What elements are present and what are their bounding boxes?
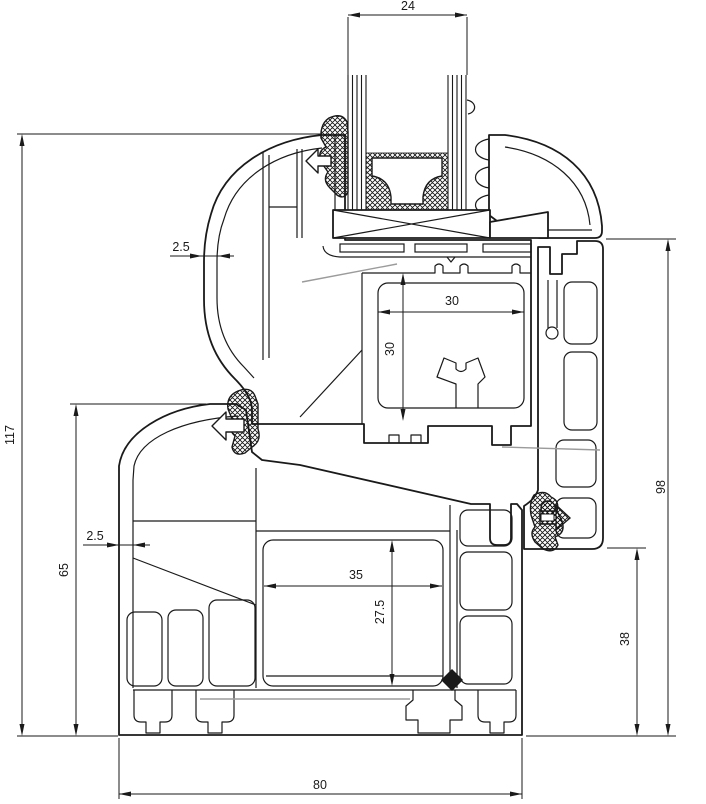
dimension-label-sash-chamber-width: 30: [445, 294, 459, 308]
profile-drawing: 242.5117652.530303527.5983880: [0, 0, 706, 804]
dimension-arrow-icon: [348, 13, 360, 18]
dimension-label-frame-chamber-width: 35: [349, 568, 363, 582]
dimension-label-overall-height: 117: [3, 425, 17, 445]
dimension-arrow-icon: [107, 543, 119, 548]
dimension-arrow-icon: [666, 724, 671, 736]
dimension-arrow-icon: [666, 239, 671, 251]
dimension-arrow-icon: [20, 724, 25, 736]
dimension-label-sash-chamber-height: 30: [383, 342, 397, 356]
dimension-arrow-icon: [20, 134, 25, 146]
dimension-label-frame-width: 80: [313, 778, 327, 792]
dimension-arrow-icon: [74, 724, 79, 736]
dimension-frame-width: 80: [119, 738, 522, 799]
dimension-label-frame-lower-height: 38: [618, 632, 632, 646]
dimension-arrow-icon: [119, 792, 131, 797]
gasket-arrow-slot: [541, 514, 554, 521]
dimension-arrow-icon: [635, 548, 640, 560]
dimension-label-frame-outer-height: 98: [654, 480, 668, 494]
dimension-label-sash-wall-thickness: 2.5: [172, 240, 189, 254]
dimension-arrow-icon: [635, 724, 640, 736]
dimension-arrow-icon: [190, 254, 202, 259]
dimension-arrow-icon: [74, 404, 79, 416]
dimension-label-frame-chamber-height: 27.5: [373, 600, 387, 624]
dimension-label-frame-wall-thickness: 2.5: [86, 529, 103, 543]
dimension-arrow-icon: [510, 792, 522, 797]
glass-pane-outer: [348, 75, 366, 210]
bead-top-hook: [467, 100, 475, 114]
glass-pane-inner: [448, 75, 466, 210]
drawing-canvas: 242.5117652.530303527.5983880: [0, 0, 706, 804]
dimension-arrow-icon: [455, 13, 467, 18]
dimension-label-glazing-width: 24: [401, 0, 415, 13]
dimension-label-frame-height: 65: [57, 563, 71, 577]
dimension-glazing-width: 24: [348, 0, 467, 75]
bead-gasket-fingers: [476, 139, 490, 215]
frame-body-outline: [119, 404, 522, 735]
dimension-frame-lower-height: 38: [607, 548, 646, 736]
